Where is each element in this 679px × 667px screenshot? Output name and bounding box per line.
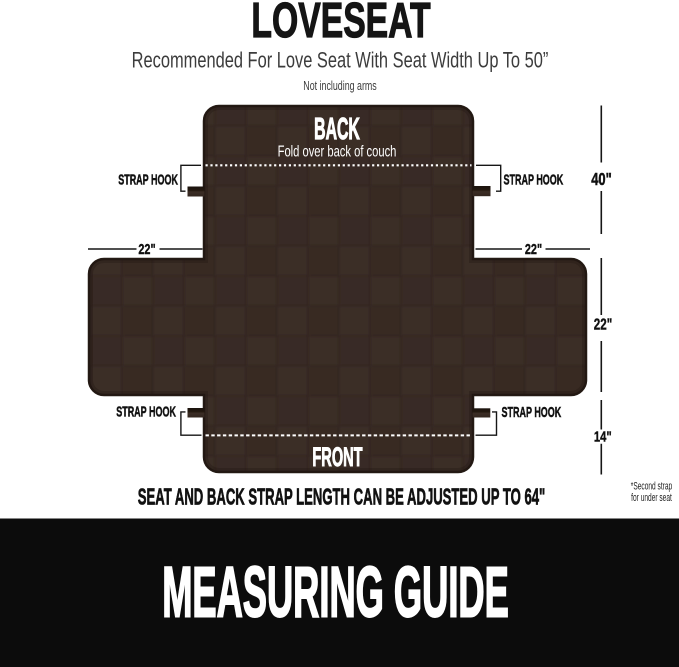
svg-text:STRAP HOOK: STRAP HOOK — [116, 403, 176, 420]
svg-text:14": 14" — [594, 428, 612, 445]
svg-text:Not including arms: Not including arms — [303, 80, 377, 94]
svg-text:40": 40" — [591, 170, 612, 190]
svg-text:*Second strap: *Second strap — [631, 480, 672, 492]
svg-text:STRAP HOOK: STRAP HOOK — [504, 171, 564, 188]
svg-text:LOVESEAT: LOVESEAT — [251, 0, 430, 48]
svg-text:Recommended For Love Seat With: Recommended For Love Seat With Seat Widt… — [132, 48, 549, 73]
svg-text:MEASURING GUIDE: MEASURING GUIDE — [162, 552, 509, 631]
svg-text:STRAP HOOK: STRAP HOOK — [502, 403, 562, 420]
svg-text:STRAP HOOK: STRAP HOOK — [118, 171, 178, 188]
svg-text:SEAT AND BACK STRAP LENGTH CAN: SEAT AND BACK STRAP LENGTH CAN BE ADJUST… — [138, 483, 545, 509]
svg-text:22": 22" — [525, 240, 542, 257]
svg-text:22": 22" — [138, 240, 155, 257]
svg-text:for under seat: for under seat — [631, 491, 672, 503]
svg-text:Fold over back of couch: Fold over back of couch — [278, 142, 397, 161]
svg-text:FRONT: FRONT — [312, 442, 362, 472]
svg-text:22": 22" — [594, 316, 612, 333]
